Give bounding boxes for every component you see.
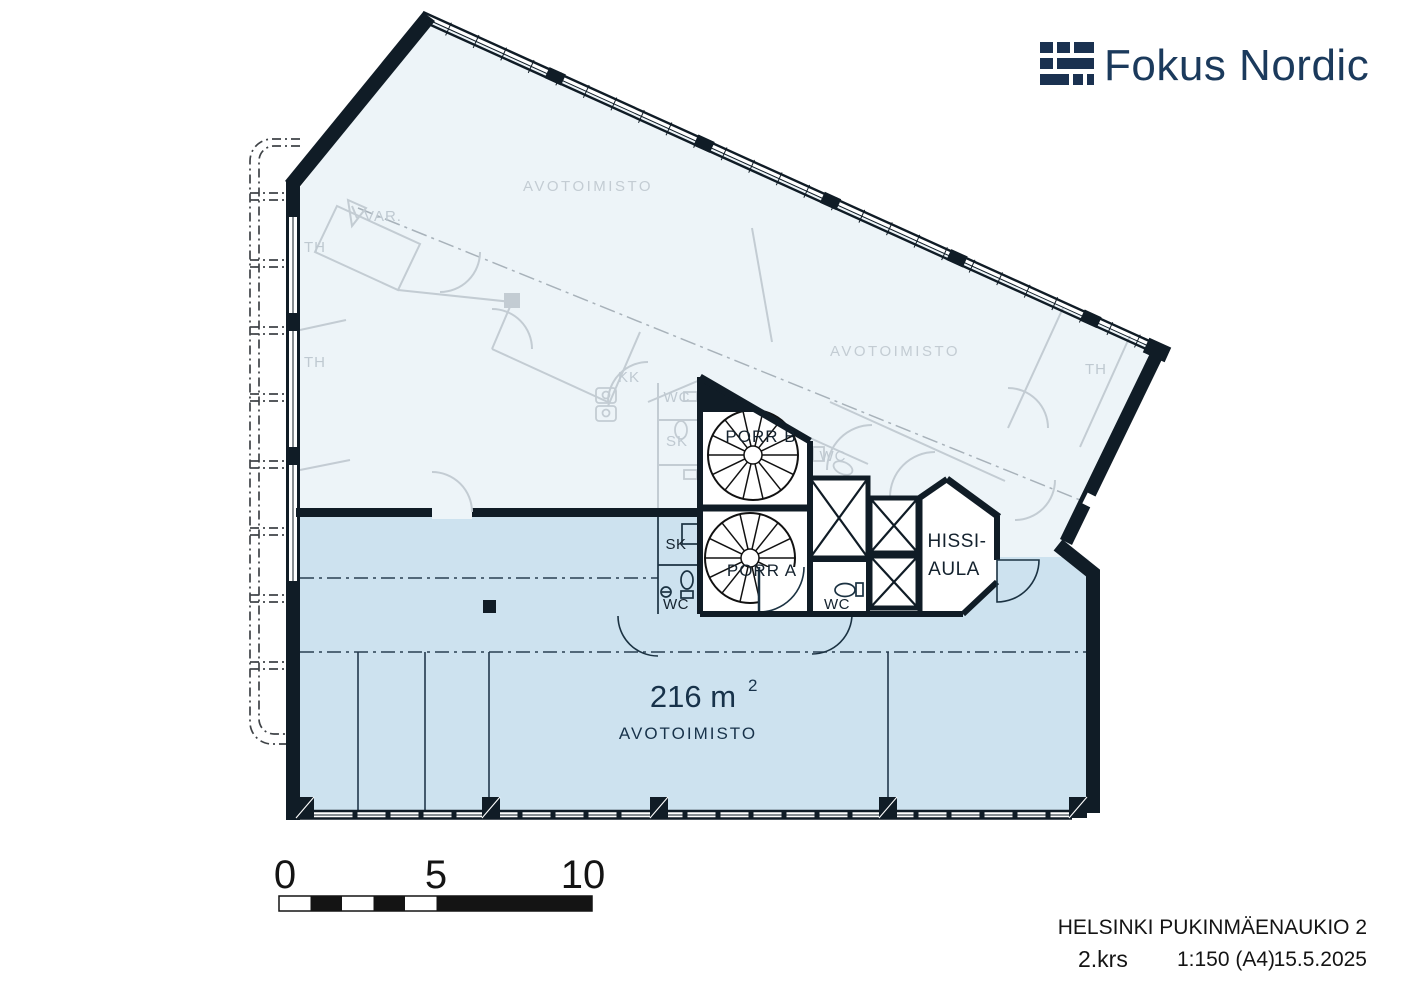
- label-hissi-line2: AULA: [928, 559, 980, 580]
- label-th-upper-left: TH: [304, 239, 326, 256]
- scale-bar: 0 5 10: [274, 853, 605, 911]
- label-wc-unit-2: WC: [824, 596, 850, 613]
- floor-plan-page: AVOTOIMISTO AVOTOIMISTO VAR. TH TH TH KK…: [0, 0, 1403, 991]
- scale-tick-5: 5: [425, 853, 447, 897]
- drawing-scale: 1:150 (A4): [1177, 948, 1275, 971]
- floor-label: 2.krs: [1078, 946, 1128, 972]
- title-block: HELSINKI PUKINMÄENAUKIO 2 2.krs 1:150 (A…: [1058, 916, 1367, 972]
- label-th-lower-left: TH: [304, 354, 326, 371]
- label-avotoimisto-top: AVOTOIMISTO: [523, 178, 653, 195]
- floor-plan-drawing: AVOTOIMISTO AVOTOIMISTO VAR. TH TH TH KK…: [0, 0, 1403, 991]
- unit-area-superscript: 2: [748, 676, 757, 695]
- label-wc-gray-2: WC: [820, 448, 847, 465]
- label-hissi-line1: HISSI-: [928, 531, 987, 552]
- fokus-nordic-logo-icon: [1040, 42, 1094, 85]
- label-avotoimisto-right: AVOTOIMISTO: [830, 343, 960, 360]
- label-var: VAR.: [364, 208, 402, 225]
- label-stair-b: PORR B: [725, 427, 796, 446]
- project-title: HELSINKI PUKINMÄENAUKIO 2: [1058, 916, 1367, 939]
- label-sk-unit: SK: [665, 536, 686, 553]
- label-wc-gray-1: WC: [664, 389, 691, 406]
- scale-tick-10: 10: [561, 853, 606, 897]
- label-th-right: TH: [1085, 361, 1107, 378]
- interior-column: [483, 600, 496, 613]
- label-kk: KK: [618, 369, 640, 386]
- label-sk-gray: SK: [666, 433, 688, 450]
- label-wc-unit-1: WC: [663, 596, 689, 613]
- drawing-date: 15.5.2025: [1274, 948, 1367, 971]
- unit-area-value: 216 m: [650, 679, 736, 714]
- label-stair-a: PORR A: [727, 561, 797, 580]
- fokus-nordic-logo: Fokus Nordic: [1040, 41, 1369, 90]
- fokus-nordic-logo-text: Fokus Nordic: [1104, 41, 1369, 90]
- wall-opening: [1085, 498, 1101, 506]
- wall-door-gap: [432, 506, 472, 519]
- unit-room-type: AVOTOIMISTO: [619, 724, 757, 743]
- scale-tick-0: 0: [274, 853, 296, 897]
